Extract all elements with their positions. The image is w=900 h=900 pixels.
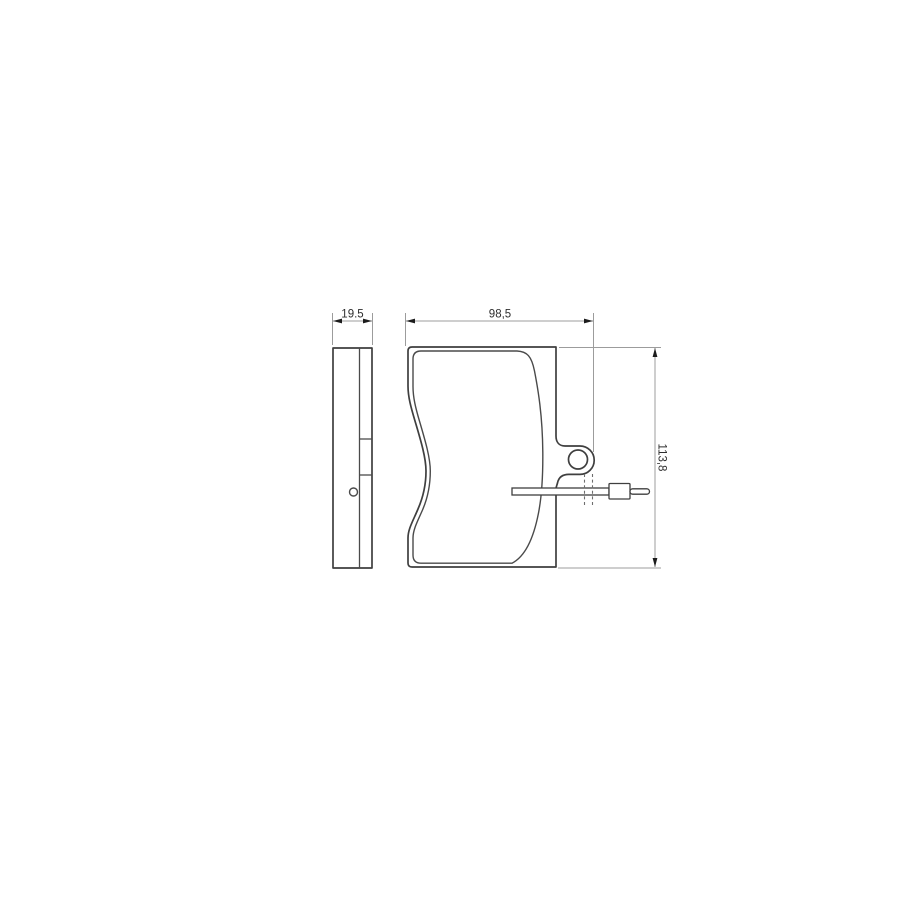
arrowhead-left-icon	[406, 319, 415, 324]
arrowhead-right-icon	[584, 319, 593, 324]
ear-hole	[569, 450, 588, 469]
arrowhead-up-icon	[653, 348, 658, 357]
wire-pin	[630, 489, 650, 494]
technical-drawing: 19.5 98,5 113,8	[0, 0, 900, 900]
wire-shaft	[512, 488, 609, 495]
side-view	[333, 348, 372, 568]
arrowhead-down-icon	[653, 558, 658, 567]
side-view-outline	[333, 348, 372, 568]
front-view	[408, 347, 650, 567]
dimension-label-front-height: 113,8	[656, 444, 668, 472]
dimension-label-front-width: 98,5	[489, 309, 511, 321]
backing-plate-outline	[408, 347, 594, 567]
dimension-side-width: 19.5	[333, 309, 373, 346]
dimension-label-side-width: 19.5	[341, 309, 363, 321]
wire-connector	[609, 484, 630, 500]
arrowhead-right-icon	[363, 319, 372, 324]
product-image: 19.5 98,5 113,8	[0, 0, 900, 900]
